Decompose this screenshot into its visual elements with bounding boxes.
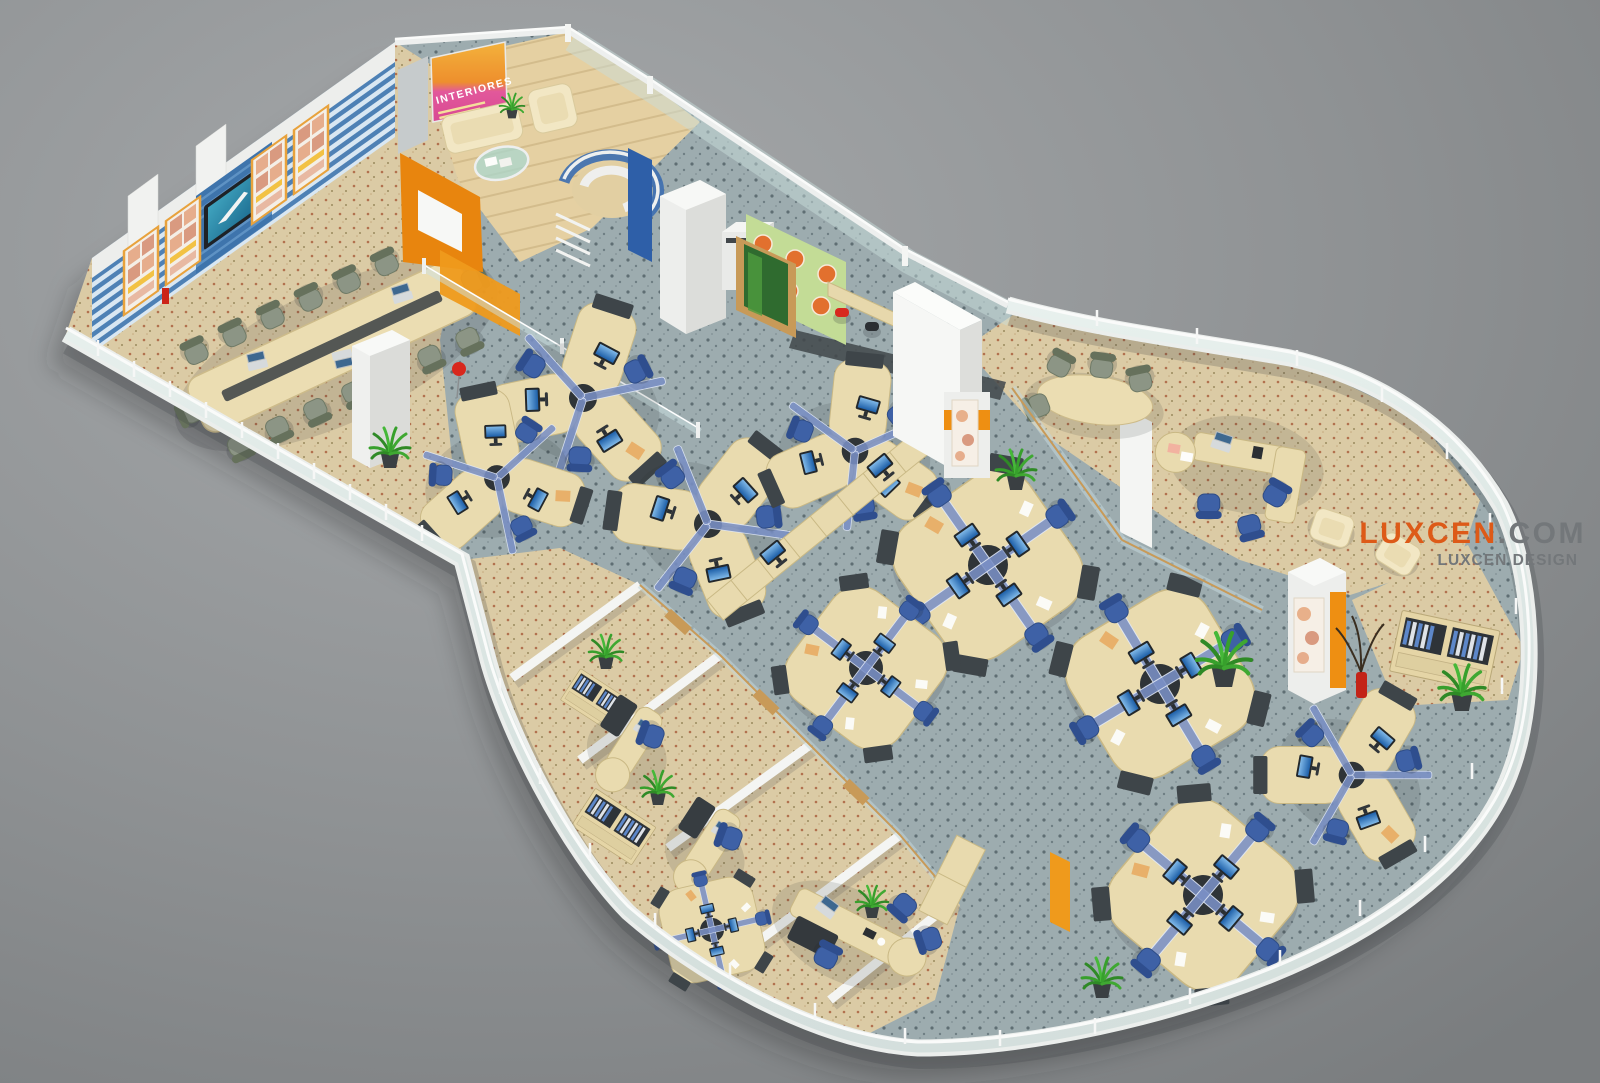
- orange-pillar: [1288, 558, 1346, 704]
- mirror-pillar: [398, 56, 428, 154]
- storage-tower: [660, 180, 726, 334]
- watermark-brand: LUXCEN: [1359, 517, 1497, 550]
- render-canvas: INTERIORES: [0, 0, 1600, 1083]
- fire-extinguisher: [162, 288, 169, 304]
- orange-panel: [1050, 852, 1070, 932]
- blue-panel: [628, 148, 652, 262]
- watermark-tagline: LUXCEN DESIGN: [1438, 552, 1578, 569]
- red-balloon-decor: [452, 362, 466, 376]
- orange-pillar: [944, 392, 990, 478]
- bar-stool: [833, 308, 851, 324]
- bar-stool: [863, 322, 881, 338]
- watermark-suffix: .COM: [1498, 517, 1586, 550]
- office-floorplan-render: INTERIORES: [0, 0, 1600, 1083]
- watermark-logo: LUXCEN.COM: [1359, 517, 1586, 550]
